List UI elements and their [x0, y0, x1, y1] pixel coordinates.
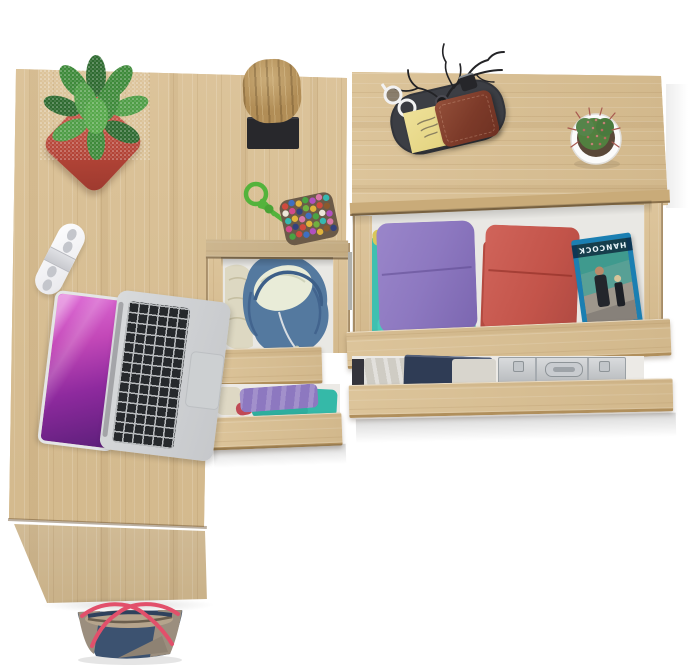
cactus [560, 106, 632, 172]
wallet-stitch [438, 94, 496, 144]
valet-tray-group [0, 0, 700, 666]
product-photo-stage: HANCOCK [0, 0, 700, 666]
handbag [66, 592, 194, 666]
